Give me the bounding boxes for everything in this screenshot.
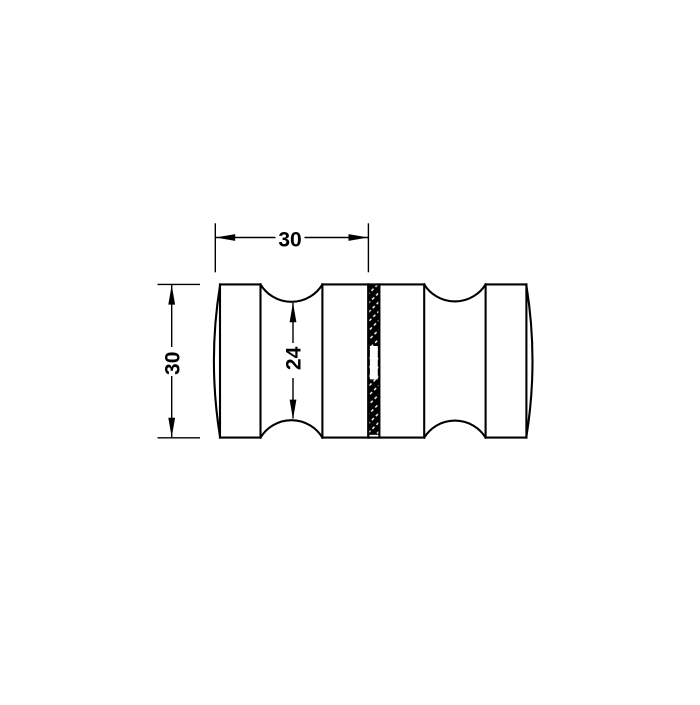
svg-text:30: 30: [278, 229, 301, 252]
svg-text:30: 30: [161, 352, 184, 375]
svg-text:24: 24: [283, 346, 306, 370]
